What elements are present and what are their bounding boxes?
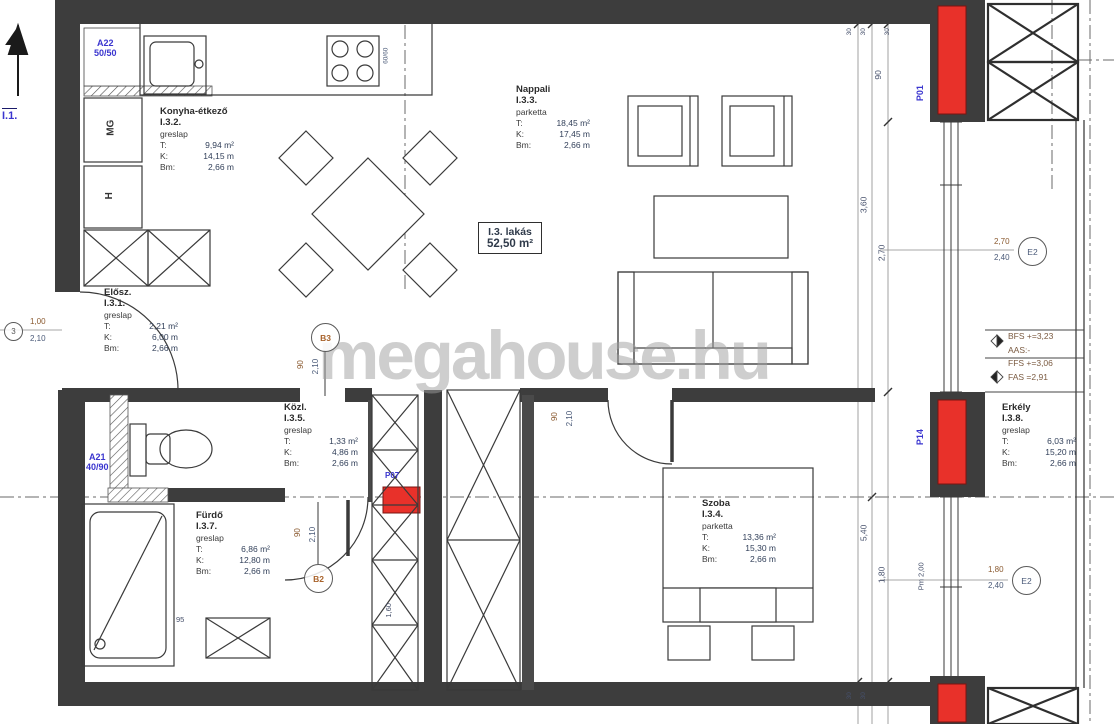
level-fas: FAS =2,91 <box>1008 371 1053 385</box>
tag-a22: A2250/50 <box>94 38 117 59</box>
level-diamond-icon <box>991 335 1003 383</box>
dim-window-h: 2,40 <box>994 253 1010 262</box>
dim-tick-bottom-2: 30 <box>860 692 867 699</box>
apartment-area: 52,50 m² <box>487 238 533 250</box>
apartment-summary-box: I.3. lakás 52,50 m² <box>478 222 542 254</box>
level-aas: AAS:- <box>1008 344 1053 358</box>
north-arrow-icon <box>7 26 27 96</box>
marker-entry: 3 <box>4 322 23 341</box>
dim-parapet: Pm 2,00 <box>918 562 927 590</box>
dim-chain-90: 90 <box>874 70 884 79</box>
dim-balcony-w: 1,80 <box>988 565 1004 574</box>
room-label-konyha: Konyha-étkező I.3.2. greslap T:9,94 m² K… <box>160 106 234 172</box>
dim-chain-360: 3,60 <box>859 197 869 214</box>
label-mg: MG <box>105 120 117 136</box>
shaft-lattice <box>372 390 520 690</box>
room-label-nappali: Nappali I.3.3. parketta T:18,45 m² K:17,… <box>516 84 590 150</box>
dim-tick-top-1: 30 <box>846 28 853 35</box>
bedroom-door-arc <box>608 400 672 464</box>
coffee-table <box>654 196 788 258</box>
dim-tick-bottom-1: 30 <box>846 692 853 699</box>
tag-i1: I.1. <box>2 108 17 123</box>
room-label-szoba: Szoba I.3.4. parketta T:13,36 m² K:15,30… <box>702 498 776 564</box>
dim-tick-top-3: 30 <box>884 28 891 35</box>
dim-entry-w: 1,00 <box>30 317 46 326</box>
dim-balcony-h: 2,40 <box>988 581 1004 590</box>
nightstand-2 <box>752 626 794 660</box>
tag-p14: P14 <box>915 429 925 445</box>
dim-chain-540: 5,40 <box>859 525 869 542</box>
marker-balcony-door: E2 <box>1012 566 1041 595</box>
marker-b3: B3 <box>311 323 340 352</box>
dining-table <box>312 158 424 270</box>
marker-window: E2 <box>1018 237 1047 266</box>
wc-bowl <box>160 430 212 468</box>
dim-b2-h: 2,10 <box>308 527 317 543</box>
label-h: H <box>104 192 116 199</box>
level-ffs: FFS +=3,06 <box>1008 357 1053 371</box>
watermark: megahouse.hu <box>318 316 769 395</box>
dim-b3-w: 90 <box>296 360 305 369</box>
wc-tank <box>130 424 146 476</box>
level-bfs: BFS +=3,23 <box>1008 330 1053 344</box>
room-label-furdo: Fürdő I.3.7. greslap T:6,86 m² K:12,80 m… <box>196 510 270 576</box>
dim-szoba-door-w: 90 <box>550 412 559 421</box>
marker-b2: B2 <box>304 564 333 593</box>
dim-shaft: 1,60 <box>385 603 394 618</box>
dim-window-w: 2,70 <box>994 237 1010 246</box>
tag-a21: A2140/90 <box>86 452 109 473</box>
room-label-kozlekedo: Közl. I.3.5. greslap T:1,33 m² K:4,86 m … <box>284 402 358 468</box>
dim-szoba-door-h: 2,10 <box>565 411 574 427</box>
floor-plan: megahouse.hu I.3. lakás 52,50 m² Konyha-… <box>0 0 1114 724</box>
dim-entry-h: 2,10 <box>30 334 46 343</box>
room-label-eloszoba: Elősz. I.3.1. greslap T:2,21 m² K:6,00 m… <box>104 287 178 353</box>
dining-set <box>279 131 457 297</box>
tag-p07: P07 <box>385 471 399 480</box>
room-label-erkely: Erkély I.3.8. greslap T:6,03 m² K:15,20 … <box>1002 402 1076 468</box>
dim-stove: 60/60 <box>382 48 389 64</box>
dim-b3-h: 2,10 <box>311 359 320 375</box>
apartment-id: I.3. lakás <box>487 226 533 238</box>
dim-chain-180: 1,80 <box>877 567 887 584</box>
nightstand-1 <box>668 626 710 660</box>
dim-chain-270: 2,70 <box>877 245 887 262</box>
tag-p01: P01 <box>915 85 925 101</box>
dim-shower: 95 <box>176 616 184 625</box>
dim-b2-w: 90 <box>293 528 302 537</box>
level-annotations: BFS +=3,23 AAS:- FFS +=3,06 FAS =2,91 <box>1008 330 1053 384</box>
dim-tick-top-2: 30 <box>860 28 867 35</box>
